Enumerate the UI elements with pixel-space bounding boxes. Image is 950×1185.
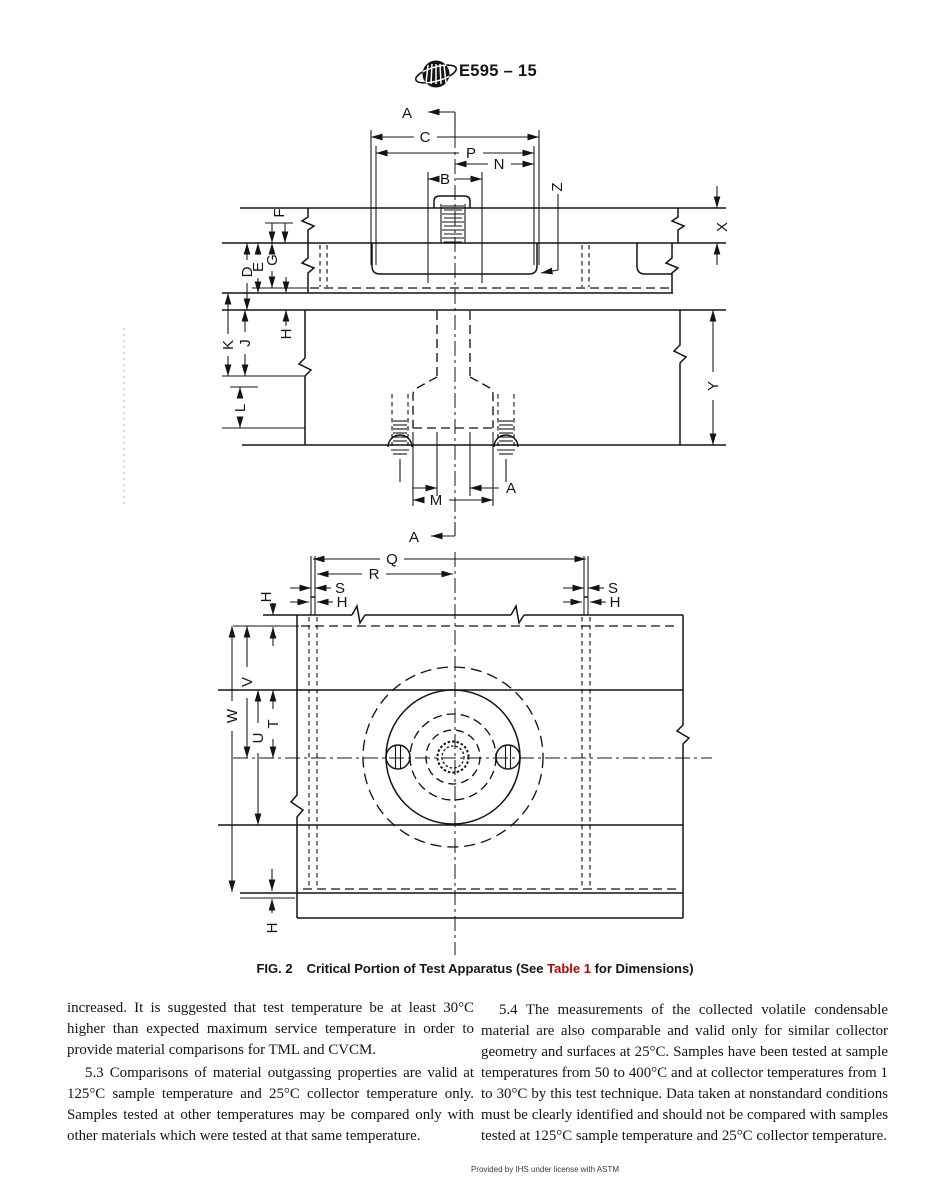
base-block-outline (222, 310, 726, 482)
dim-label-h: H (258, 592, 275, 603)
dim-label-j: J (237, 339, 254, 347)
dim-Y: Y (705, 310, 722, 445)
dim-label-d: D (239, 266, 256, 277)
section-marker-bottom: A (409, 522, 455, 546)
dim-W: W (224, 626, 241, 892)
right-column: 5.4 The measurements of the collected vo… (481, 998, 888, 1147)
dim-label-b: B (440, 171, 450, 188)
dim-label-k: K (220, 340, 237, 350)
paragraph-continuation: increased. It is suggested that test tem… (67, 998, 474, 1061)
dim-label-z: Z (549, 182, 566, 191)
dim-X: X (714, 186, 731, 265)
dim-H-left: H (290, 594, 347, 611)
left-column: increased. It is suggested that test tem… (67, 998, 474, 1147)
clamp-screw-right (494, 394, 518, 482)
dim-L: L (232, 387, 249, 428)
figure-2-drawing: A C P (0, 0, 950, 958)
slotted-screw-right (496, 745, 520, 769)
dim-label-w: W (224, 708, 241, 723)
dim-label-h: H (264, 923, 281, 934)
dim-H-gap: H (278, 277, 295, 339)
dim-label-p: P (466, 145, 476, 162)
caption-text: for Dimensions) (591, 961, 694, 976)
figure-number: FIG. 2 (256, 961, 292, 976)
dim-Q: Q (313, 551, 586, 568)
dim-F: F (265, 208, 293, 243)
dim-label-c: C (420, 129, 431, 146)
section-label-a: A (409, 529, 419, 546)
dim-label-r: R (369, 566, 380, 583)
dim-label-q: Q (386, 551, 398, 568)
collector-plate-plan-outline (218, 606, 689, 918)
dim-label-a: A (506, 480, 516, 497)
figure-caption: FIG. 2Critical Portion of Test Apparatus… (0, 961, 950, 976)
section-label-a: A (402, 105, 412, 122)
slotted-screw-left (386, 745, 410, 769)
dim-label-h: H (278, 329, 295, 340)
dim-label-h: H (610, 594, 621, 611)
dim-label-v: V (239, 677, 256, 687)
dim-M: M (413, 432, 493, 509)
caption-text: Critical Portion of Test Apparatus (See (307, 961, 548, 976)
sample-holder-outline (222, 243, 678, 293)
body-text: increased. It is suggested that test tem… (67, 998, 888, 1147)
dim-label-m: M (430, 492, 443, 509)
dim-T: T (265, 690, 282, 758)
dim-label-h: H (337, 594, 348, 611)
clamp-screw-left (388, 394, 412, 482)
plan-view: Q R S H S (218, 551, 712, 955)
section-view: A C P (220, 105, 731, 546)
dim-H-bottom-edge: H (264, 869, 281, 933)
paragraph-5-4: 5.4 The measurements of the collected vo… (481, 1000, 888, 1147)
dim-J: J (237, 310, 254, 376)
dim-K: K (220, 293, 237, 376)
collector-circles (363, 667, 543, 847)
dim-label-t: T (265, 719, 282, 728)
dim-H-top-edge: H (258, 592, 275, 646)
dim-label-l: L (232, 404, 249, 412)
document-page: E595 – 15 A (0, 0, 950, 1185)
dim-label-u: U (250, 733, 267, 744)
table-1-link[interactable]: Table 1 (547, 961, 591, 976)
dim-label-y: Y (705, 381, 722, 391)
collector-plate-outline (222, 196, 726, 243)
dim-label-x: X (714, 222, 731, 232)
bolt-threads (442, 206, 464, 242)
dim-A: A (412, 432, 516, 497)
dim-D: D (239, 243, 256, 310)
dim-Z: Z (541, 182, 566, 273)
paragraph-5-3: 5.3 Comparisons of material outgassing p… (67, 1063, 474, 1147)
dim-label-f: F (271, 208, 288, 217)
license-footer: Provided by IHS under license with ASTM (0, 1165, 950, 1174)
dim-label-n: N (494, 156, 505, 173)
dim-H-right: H (563, 594, 620, 611)
